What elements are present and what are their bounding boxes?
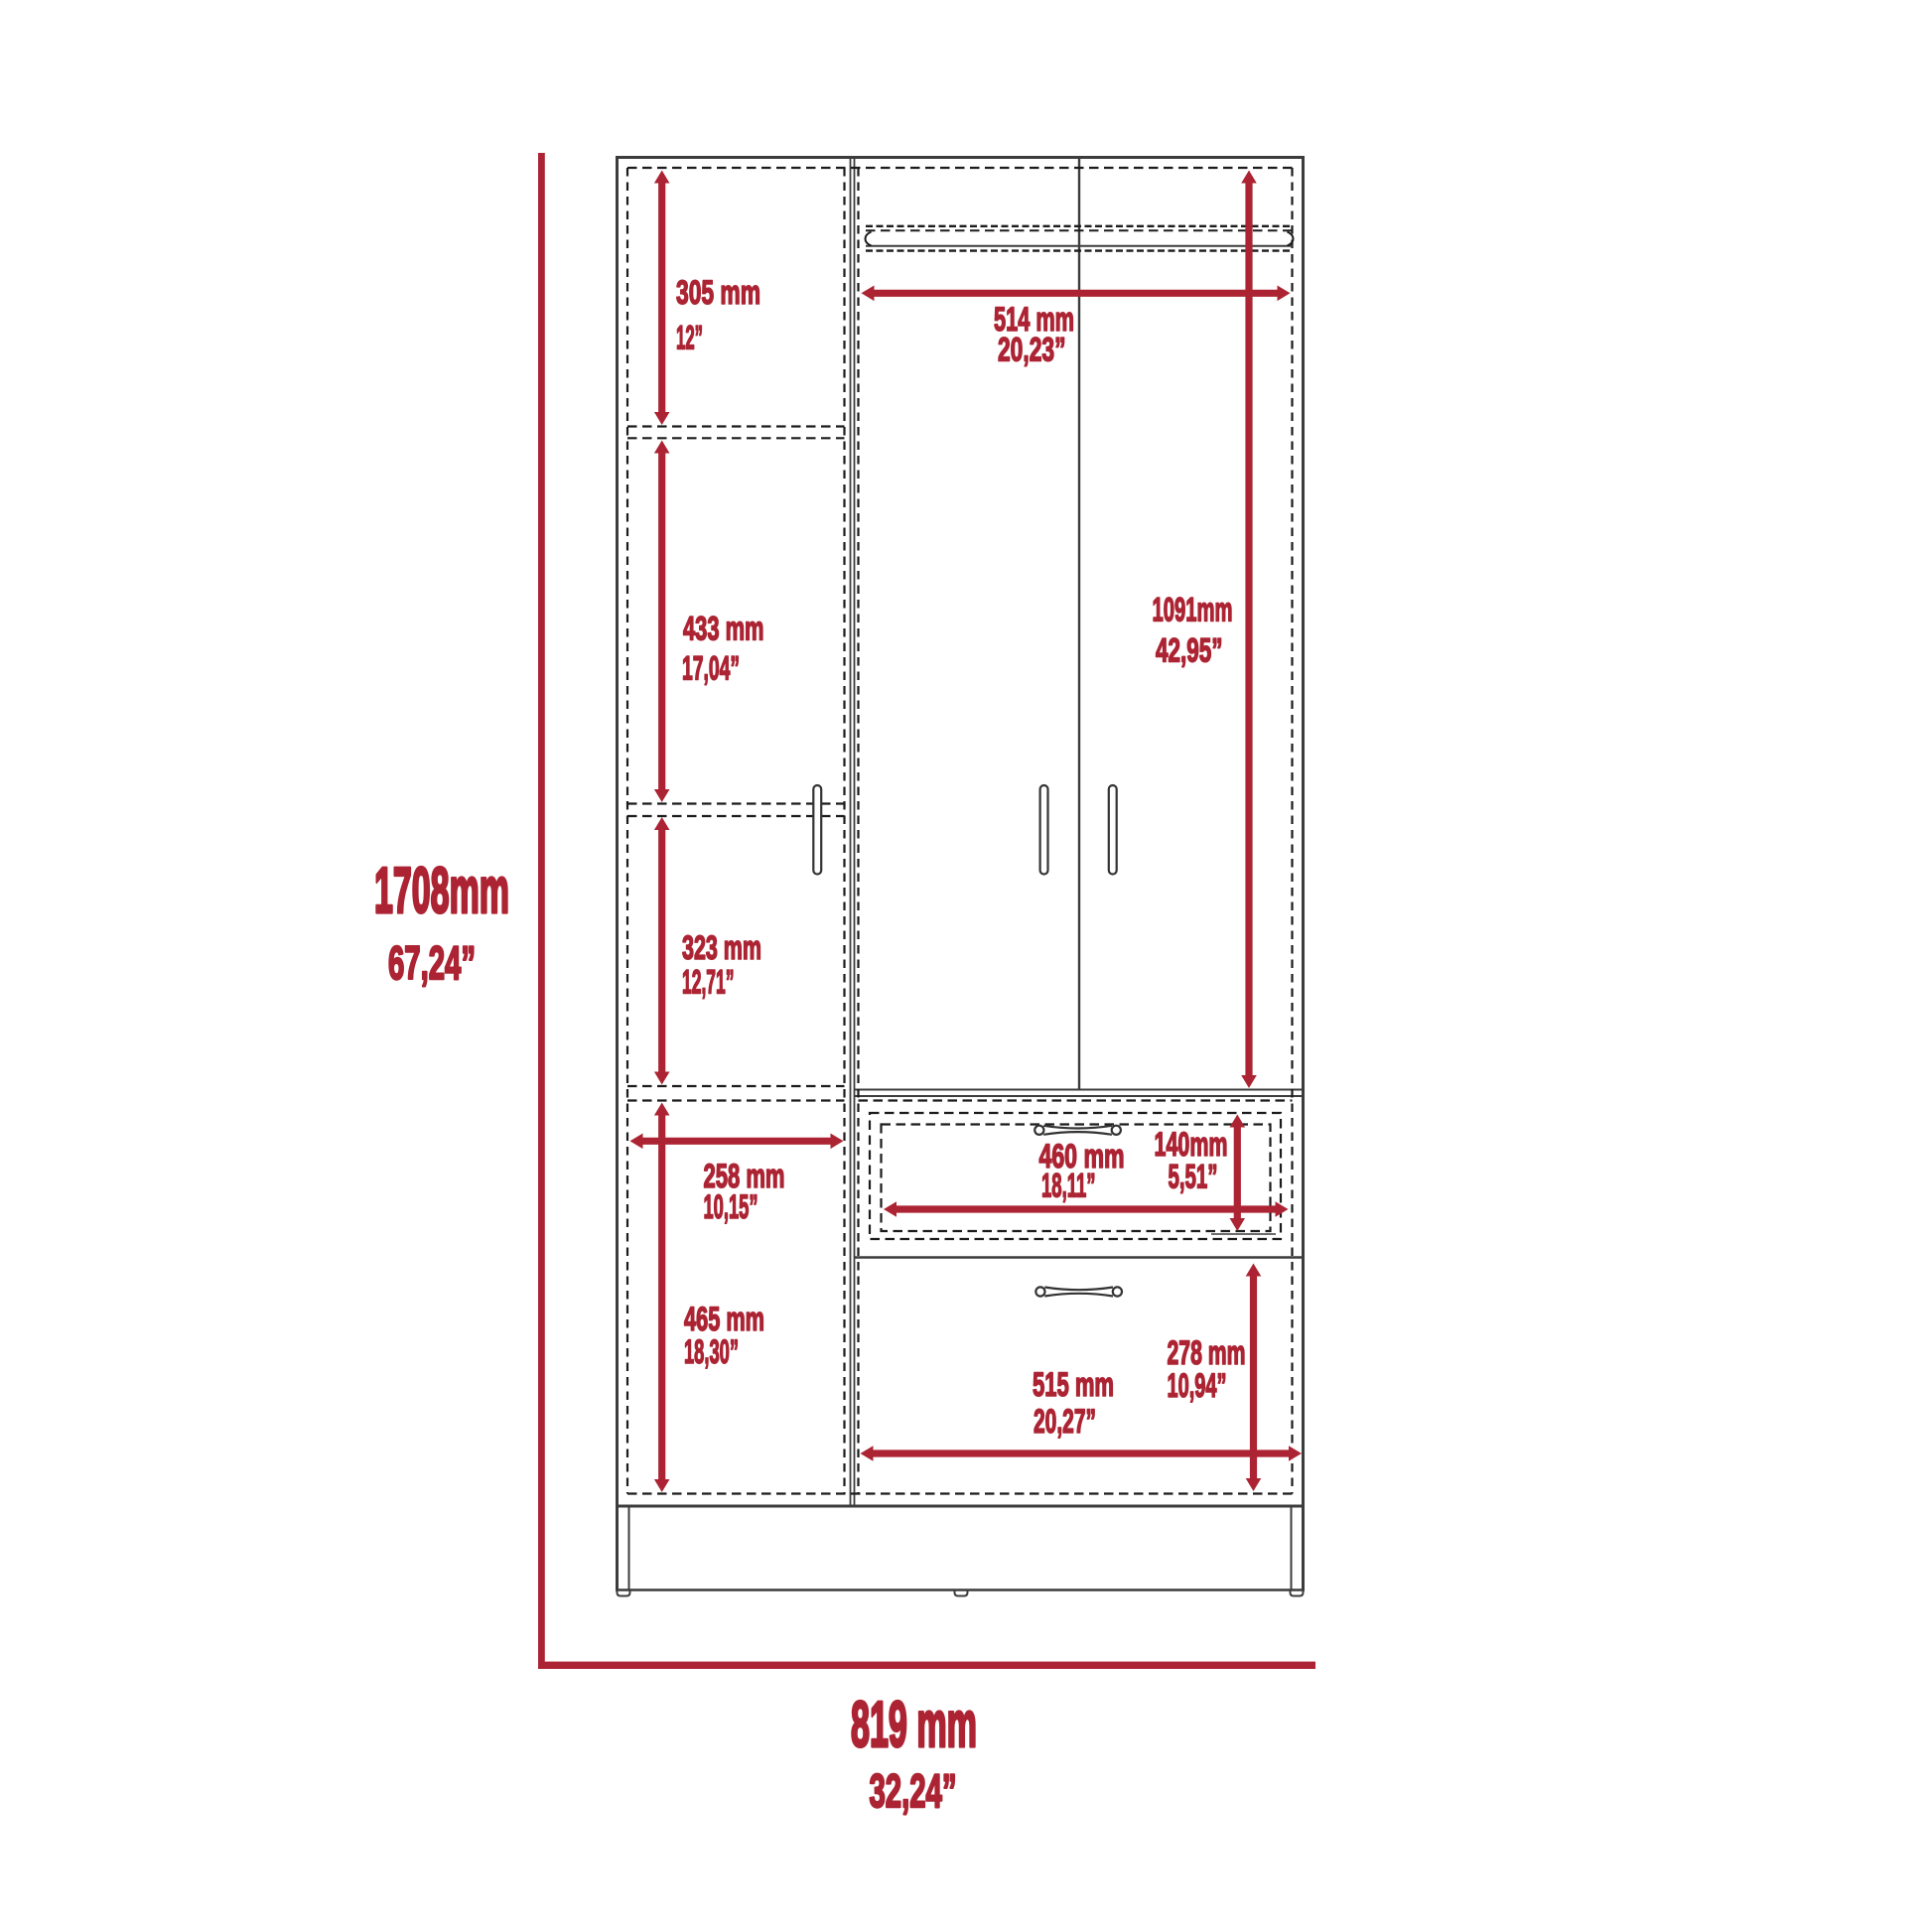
svg-text:1091mm: 1091mm <box>1153 592 1233 629</box>
svg-text:12,71”: 12,71” <box>682 964 735 1002</box>
svg-text:67,24”: 67,24” <box>388 937 476 990</box>
svg-text:20,27”: 20,27” <box>1034 1403 1096 1441</box>
svg-text:42,95”: 42,95” <box>1156 632 1223 670</box>
svg-text:10,94”: 10,94” <box>1168 1367 1227 1405</box>
svg-text:433 mm: 433 mm <box>683 611 764 648</box>
svg-text:18,11”: 18,11” <box>1041 1168 1096 1205</box>
svg-text:20,23”: 20,23” <box>998 332 1066 369</box>
svg-text:18,30”: 18,30” <box>684 1333 739 1371</box>
svg-text:305 mm: 305 mm <box>676 274 760 312</box>
svg-text:323 mm: 323 mm <box>682 929 761 967</box>
svg-text:515 mm: 515 mm <box>1033 1366 1114 1404</box>
svg-text:17,04”: 17,04” <box>682 650 740 688</box>
svg-text:32,24”: 32,24” <box>870 1765 957 1818</box>
svg-text:819 mm: 819 mm <box>851 1688 977 1760</box>
svg-text:5,51”: 5,51” <box>1169 1159 1218 1196</box>
svg-text:12”: 12” <box>676 320 703 357</box>
svg-text:1708mm: 1708mm <box>374 854 509 926</box>
svg-text:10,15”: 10,15” <box>704 1188 759 1226</box>
